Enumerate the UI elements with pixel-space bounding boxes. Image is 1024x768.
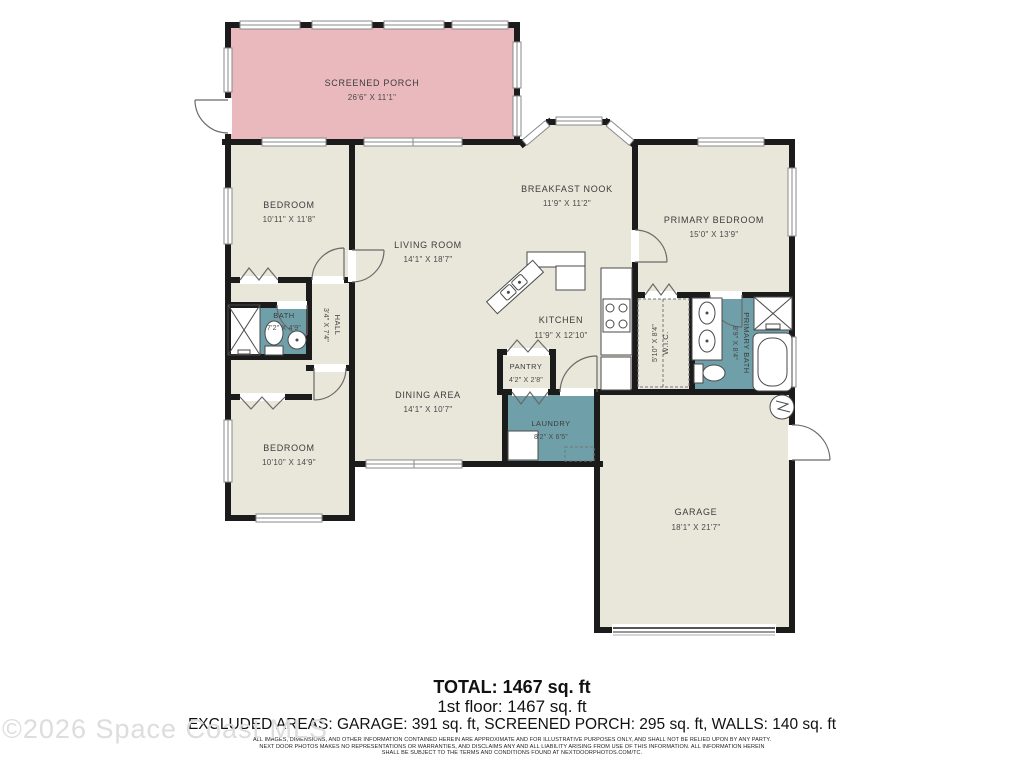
room-name: SCREENED PORCH [325,78,420,88]
door-garage-exterior [788,425,830,460]
fridge-icon [601,357,631,390]
room-name: BEDROOM [263,443,314,453]
room-name: HALL [333,315,342,336]
room-name: DINING AREA [395,390,461,400]
primary-vanity [692,298,722,360]
room-dims: 4'2" X 2'8" [509,377,543,384]
room-name: BATH [273,311,294,320]
room-name: PRIMARY BATH [742,312,751,373]
room-dims: 8'9" X 8'4" [731,326,738,360]
room-name: W.I.C. [661,331,670,354]
floor-plan-svg: SCREENED PORCH 26'6" X 11'1" BEDROOM 10'… [0,0,1024,660]
room-dims: 15'0" X 13'9" [689,230,738,239]
room-dims: 5'10" X 8'4" [652,324,659,362]
room-dims: 26'6" X 11'1" [348,93,397,102]
bathtub-icon [753,333,792,391]
room-dims: 11'9" X 11'2" [543,199,591,208]
room-name: LIVING ROOM [394,240,462,250]
mls-watermark: ©2026 Space Coast MLS [2,714,328,745]
water-heater-icon [770,395,794,419]
disclaimer-line: SHALL BE SUBJECT TO THE TERMS AND CONDIT… [0,750,1024,757]
room-name: PRIMARY BEDROOM [664,215,764,225]
room-dims: 3'4" X 7'4" [322,308,329,342]
sink-icon [288,331,306,349]
room-name: BEDROOM [263,200,314,210]
floor-plan-page: SCREENED PORCH 26'6" X 11'1" BEDROOM 10'… [0,0,1024,768]
room-name: GARAGE [675,507,718,517]
room-name: BREAKFAST NOOK [521,184,613,194]
room-dims: 14'1" X 18'7" [403,255,452,264]
room-bedroom-top [228,142,352,280]
door-porch-exterior [195,98,232,134]
room-name: LAUNDRY [531,419,570,428]
room-name: PANTRY [510,362,543,371]
room-dims: 8'2" X 6'5" [534,434,568,441]
room-hall [309,280,352,368]
sliding-door-porch [364,138,462,146]
kitchen-counter [601,268,632,390]
room-dims: 10'11" X 11'8" [263,215,316,224]
total-area: TOTAL: 1467 sq. ft [0,677,1024,697]
room-dims: 18'1" X 21'7" [671,523,720,532]
sliding-door-dining [366,460,462,468]
garage-door [612,624,776,637]
room-dims: 11'9" X 12'10" [534,331,587,340]
room-dims: 10'10" X 14'9" [262,458,316,467]
room-name: KITCHEN [539,315,583,325]
room-dims: 14'1" X 10'7" [403,405,452,414]
room-dims: 7'2" X 4'9" [267,325,301,332]
primary-shower-icon [754,297,792,330]
